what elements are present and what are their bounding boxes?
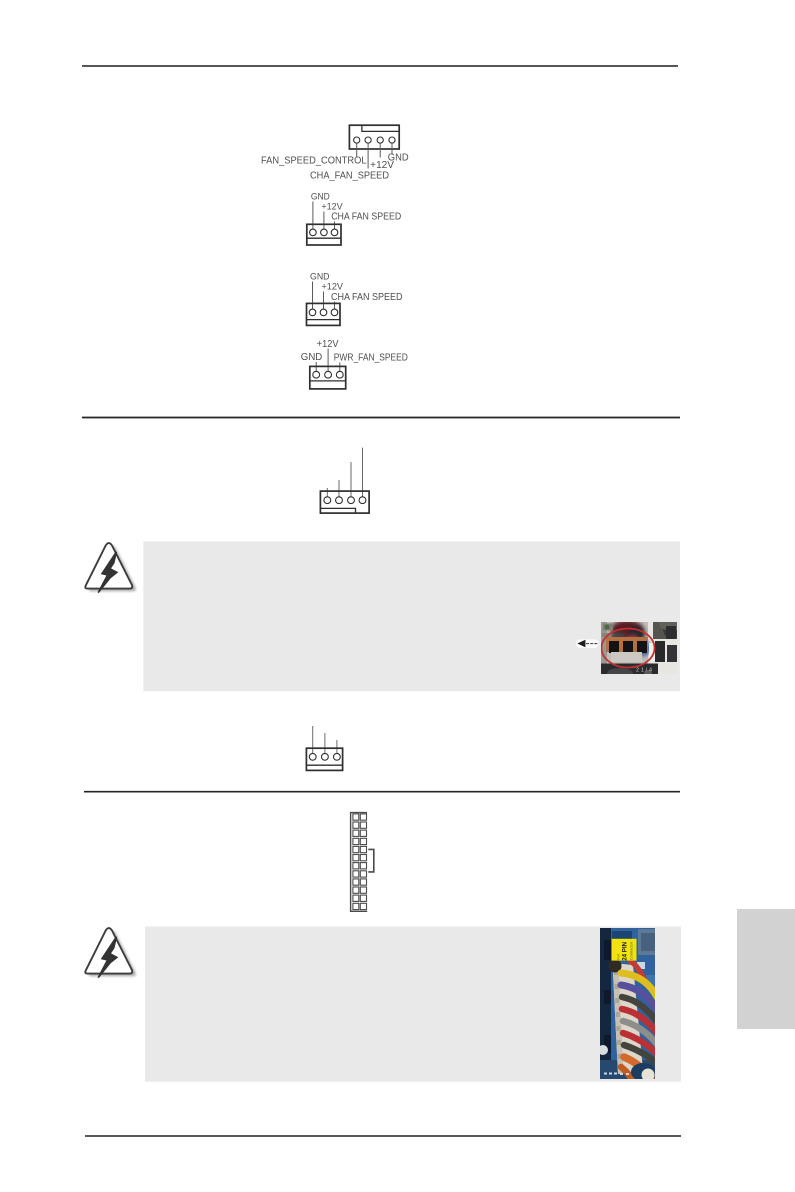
svg-text:For: For [616,953,621,960]
svg-text:+12V: +12V [317,339,339,350]
svg-text:PWR_FAN_SPEED: PWR_FAN_SPEED [334,353,408,364]
svg-text:FAN_SPEED_CONTROL: FAN_SPEED_CONTROL [261,156,367,167]
svg-text:GND: GND [388,153,409,164]
svg-text:GND: GND [301,352,323,363]
svg-text:CHA FAN SPEED: CHA FAN SPEED [331,212,401,223]
svg-text:CHA FAN SPEED: CHA FAN SPEED [331,292,403,303]
svg-text:CHA_FAN_SPEED: CHA_FAN_SPEED [310,170,389,182]
svg-text:24 PIN: 24 PIN [622,941,629,960]
svg-text:Connector: Connector [629,941,634,960]
